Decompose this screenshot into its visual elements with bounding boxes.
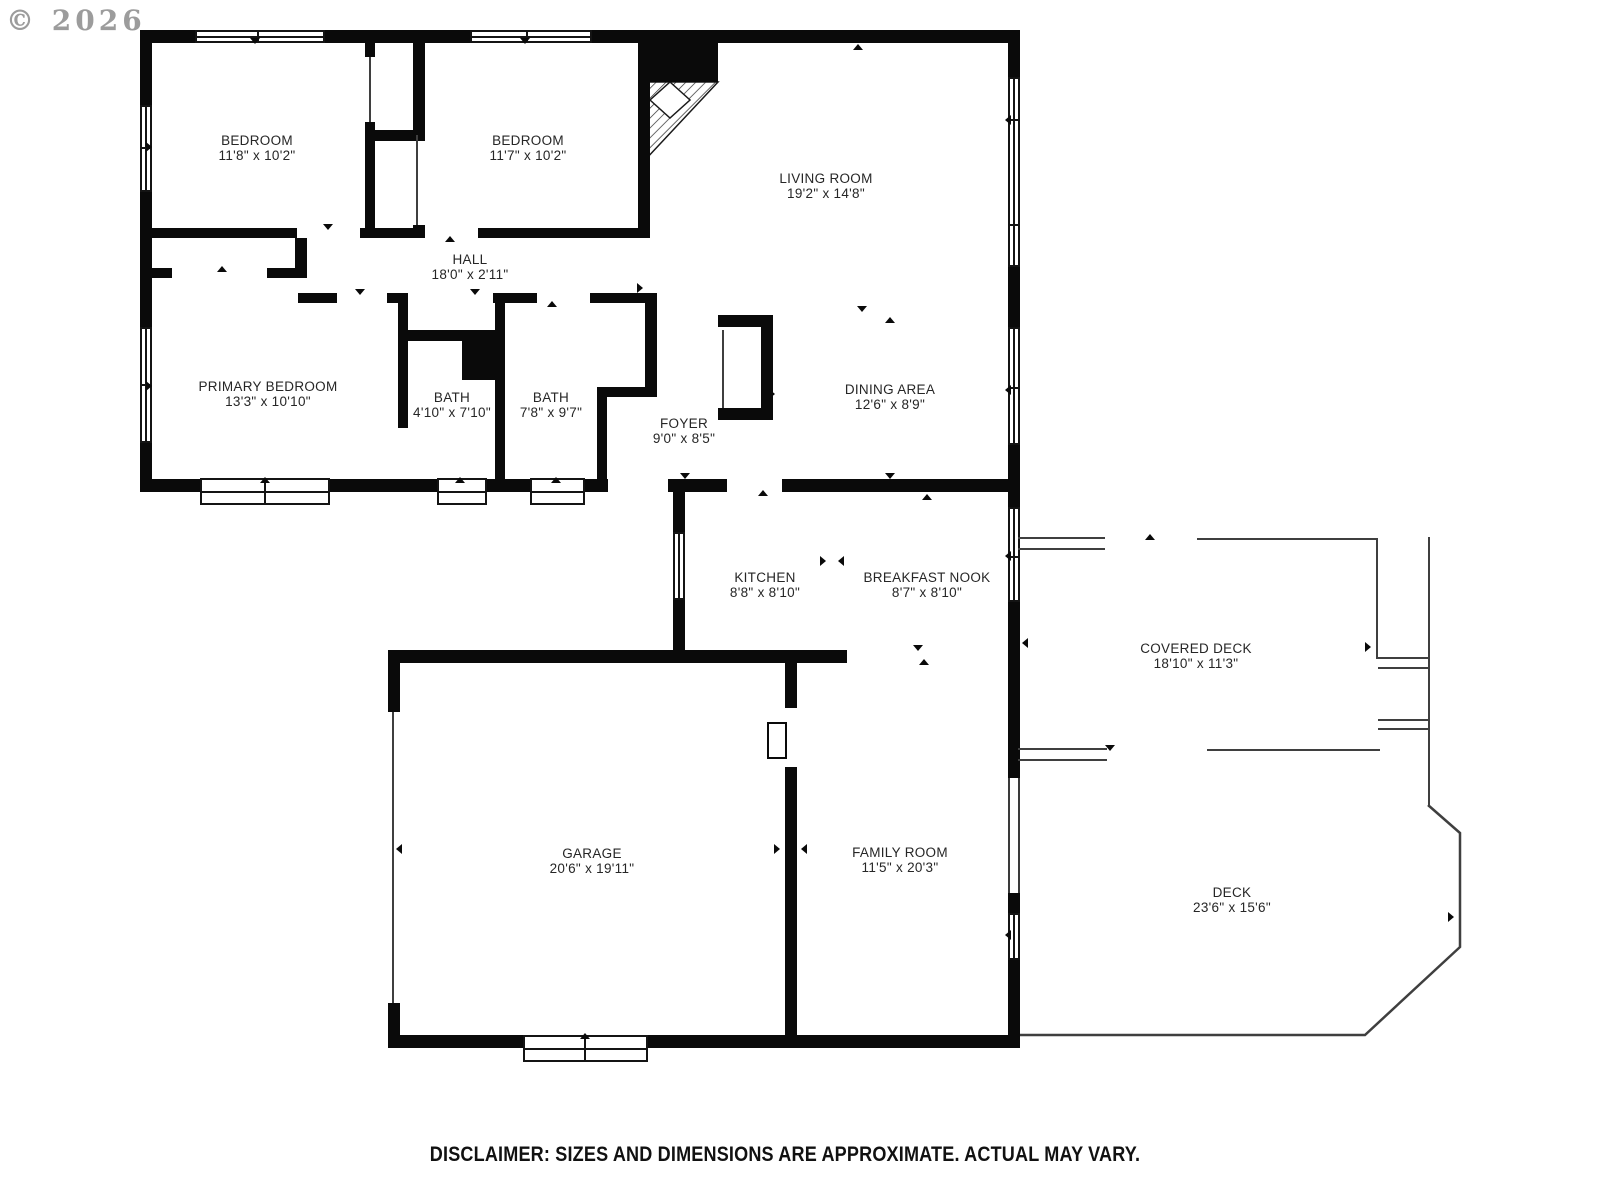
window-divider xyxy=(1009,224,1019,226)
door-marker xyxy=(637,283,643,293)
closet-door-line xyxy=(722,330,724,408)
closet-door-line xyxy=(416,135,418,225)
room-dims: 12'6" x 8'9" xyxy=(845,397,935,412)
door-marker xyxy=(758,490,768,496)
room-label-foyer: FOYER9'0" x 8'5" xyxy=(653,416,715,446)
door-marker xyxy=(885,317,895,323)
wall xyxy=(152,268,172,278)
room-dims: 18'0" x 2'11" xyxy=(432,267,509,282)
room-name: KITCHEN xyxy=(730,570,800,585)
door-marker xyxy=(1005,551,1011,561)
floor-plan: © 2026 BEDROOM11'8" x 10'2" BEDROOM11'7"… xyxy=(0,0,1600,1200)
door-marker xyxy=(1365,642,1371,652)
door-marker xyxy=(919,659,929,665)
wall xyxy=(330,479,437,492)
disclaimer-text: DISCLAIMER: SIZES AND DIMENSIONS ARE APP… xyxy=(430,1143,1140,1167)
room-name: BREAKFAST NOOK xyxy=(864,570,991,585)
room-name: BEDROOM xyxy=(219,133,296,148)
wall xyxy=(673,492,685,532)
door-marker xyxy=(580,1033,590,1039)
window-divider xyxy=(584,1036,586,1061)
room-dims: 11'8" x 10'2" xyxy=(219,148,296,163)
door-marker xyxy=(217,266,227,272)
door-marker xyxy=(146,142,152,152)
wall xyxy=(408,330,462,341)
wall xyxy=(640,30,718,82)
wall xyxy=(462,330,505,380)
wall xyxy=(1008,30,1020,77)
room-label-breakfast-nook: BREAKFAST NOOK8'7" x 8'10" xyxy=(864,570,991,600)
wall xyxy=(140,30,152,105)
wall xyxy=(298,293,337,303)
door-marker xyxy=(1448,912,1454,922)
fireplace-icon xyxy=(640,78,722,164)
room-dims: 8'7" x 8'10" xyxy=(864,585,991,600)
room-label-bedroom-2: BEDROOM11'7" x 10'2" xyxy=(490,133,567,163)
wall xyxy=(325,30,470,43)
window xyxy=(1008,77,1020,267)
door-marker xyxy=(820,556,826,566)
deck-outline xyxy=(1000,780,1480,1060)
covered-deck-railing xyxy=(1018,748,1107,761)
wall xyxy=(398,303,408,428)
wall xyxy=(388,650,400,712)
room-name: HALL xyxy=(432,252,509,267)
door-marker xyxy=(1005,385,1011,395)
wall xyxy=(365,40,375,57)
wall xyxy=(1008,267,1020,327)
wall xyxy=(785,663,797,708)
door-marker xyxy=(146,381,152,391)
door-marker xyxy=(1105,745,1115,751)
wall xyxy=(1008,445,1020,507)
door-marker xyxy=(885,473,895,479)
door-marker xyxy=(250,38,260,44)
wall xyxy=(761,315,773,420)
door-marker xyxy=(769,389,775,399)
wall xyxy=(645,293,657,397)
wall xyxy=(388,650,847,663)
wall xyxy=(478,228,650,238)
door-marker xyxy=(323,224,333,230)
covered-deck-edge xyxy=(1207,749,1380,751)
room-label-family-room: FAMILY ROOM11'5" x 20'3" xyxy=(852,845,948,875)
sliding-door xyxy=(1008,778,1020,893)
room-dims: 8'8" x 8'10" xyxy=(730,585,800,600)
room-name: PRIMARY BEDROOM xyxy=(198,379,337,394)
room-name: BATH xyxy=(520,390,582,405)
door-marker xyxy=(355,289,365,295)
door-marker xyxy=(922,494,932,500)
wall xyxy=(295,238,307,268)
room-label-hall: HALL18'0" x 2'11" xyxy=(432,252,509,282)
room-dims: 18'10" x 11'3" xyxy=(1140,656,1252,671)
room-name: FAMILY ROOM xyxy=(852,845,948,860)
door-marker xyxy=(680,473,690,479)
door-marker xyxy=(1022,638,1028,648)
wall xyxy=(142,228,297,238)
room-label-primary-bedroom: PRIMARY BEDROOM13'3" x 10'10" xyxy=(198,379,337,409)
room-name: BEDROOM xyxy=(490,133,567,148)
wall xyxy=(495,293,505,479)
room-label-deck: DECK23'6" x 15'6" xyxy=(1193,885,1271,915)
room-name: DINING AREA xyxy=(845,382,935,397)
room-name: FOYER xyxy=(653,416,715,431)
wall xyxy=(782,479,1008,492)
room-dims: 7'8" x 9'7" xyxy=(520,405,582,420)
wall xyxy=(413,40,425,135)
door-marker xyxy=(470,289,480,295)
door-marker xyxy=(520,38,530,44)
room-dims: 20'6" x 19'11" xyxy=(550,861,635,876)
room-label-covered-deck: COVERED DECK18'10" x 11'3" xyxy=(1140,641,1252,671)
stair-tread xyxy=(1378,719,1428,730)
room-label-garage: GARAGE20'6" x 19'11" xyxy=(550,846,635,876)
window xyxy=(470,30,592,43)
covered-deck-edge xyxy=(1376,538,1378,659)
room-name: DECK xyxy=(1193,885,1271,900)
door-marker xyxy=(1005,930,1011,940)
door-marker xyxy=(913,645,923,651)
room-name: LIVING ROOM xyxy=(779,171,872,186)
door-marker xyxy=(1145,534,1155,540)
wall xyxy=(267,268,307,278)
stairs-edge xyxy=(1428,537,1430,807)
door-marker xyxy=(1005,115,1011,125)
copyright-year: 2026 xyxy=(52,4,146,37)
door-leaf xyxy=(767,722,787,759)
wall xyxy=(648,1035,1020,1048)
door-marker xyxy=(551,477,561,483)
room-dims: 9'0" x 8'5" xyxy=(653,431,715,446)
room-name: COVERED DECK xyxy=(1140,641,1252,656)
wall xyxy=(140,192,152,327)
room-dims: 19'2" x 14'8" xyxy=(779,186,872,201)
wall xyxy=(785,767,797,1035)
room-label-living-room: LIVING ROOM19'2" x 14'8" xyxy=(779,171,872,201)
covered-deck-railing xyxy=(1018,537,1105,550)
door-marker xyxy=(445,236,455,242)
room-dims: 23'6" x 15'6" xyxy=(1193,900,1271,915)
covered-deck-edge xyxy=(1197,538,1378,540)
room-name: GARAGE xyxy=(550,846,635,861)
door-marker xyxy=(774,844,780,854)
room-label-kitchen: KITCHEN8'8" x 8'10" xyxy=(730,570,800,600)
wall xyxy=(597,387,607,479)
garage-door-line xyxy=(392,712,394,1003)
window xyxy=(673,532,685,600)
door-marker xyxy=(547,301,557,307)
wall xyxy=(487,479,530,492)
door-marker xyxy=(396,844,402,854)
wall xyxy=(140,479,200,492)
wall xyxy=(387,293,408,303)
room-label-dining-area: DINING AREA12'6" x 8'9" xyxy=(845,382,935,412)
room-dims: 13'3" x 10'10" xyxy=(198,394,337,409)
room-name: BATH xyxy=(413,390,491,405)
room-label-bath-1: BATH4'10" x 7'10" xyxy=(413,390,491,420)
door-marker xyxy=(801,844,807,854)
wall xyxy=(668,479,727,492)
door-marker xyxy=(260,477,270,483)
door-marker xyxy=(853,44,863,50)
wall xyxy=(585,479,608,492)
room-dims: 11'7" x 10'2" xyxy=(490,148,567,163)
closet-door-line xyxy=(369,57,371,122)
room-dims: 11'5" x 20'3" xyxy=(852,860,948,875)
room-label-bedroom-1: BEDROOM11'8" x 10'2" xyxy=(219,133,296,163)
wall xyxy=(388,1035,523,1048)
door-marker xyxy=(455,477,465,483)
copyright-watermark: © 2026 xyxy=(6,4,146,37)
wall xyxy=(413,225,425,238)
stair-tread xyxy=(1378,657,1428,669)
copyright-symbol: © xyxy=(6,4,38,37)
room-dims: 4'10" x 7'10" xyxy=(413,405,491,420)
room-label-bath-2: BATH7'8" x 9'7" xyxy=(520,390,582,420)
door-marker xyxy=(838,556,844,566)
door-marker xyxy=(857,306,867,312)
wall xyxy=(1008,893,1020,913)
window xyxy=(195,30,325,43)
